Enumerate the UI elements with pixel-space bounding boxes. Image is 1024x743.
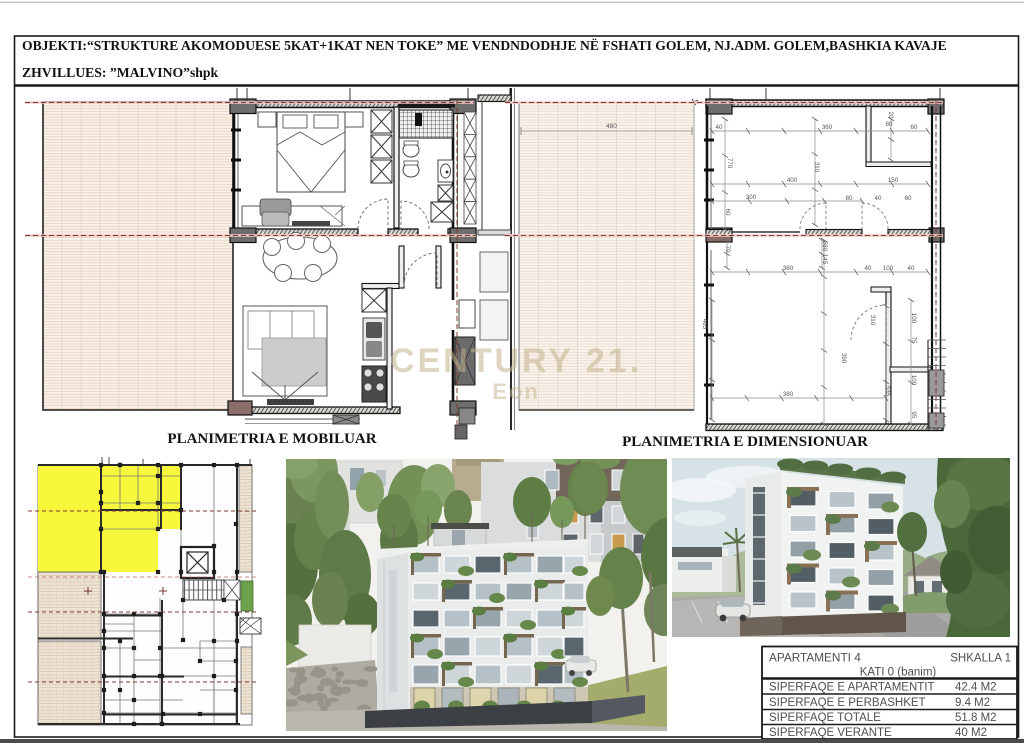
svg-text:APARTAMENTI 4: APARTAMENTI 4 xyxy=(769,651,861,665)
svg-text:40: 40 xyxy=(908,265,915,272)
svg-text:75: 75 xyxy=(910,337,917,344)
svg-text:380: 380 xyxy=(783,265,794,272)
svg-text:PLANIMETRIA E MOBILUAR: PLANIMETRIA E MOBILUAR xyxy=(167,431,376,447)
svg-text:60: 60 xyxy=(724,209,731,216)
svg-text:100: 100 xyxy=(883,265,894,272)
svg-text:51.8 M2: 51.8 M2 xyxy=(955,712,997,724)
svg-text:310: 310 xyxy=(813,162,820,173)
svg-text:SIPERFAQE E PERBASHKET: SIPERFAQE E PERBASHKET xyxy=(769,697,926,709)
svg-text:40: 40 xyxy=(716,124,723,131)
svg-text:PLANIMETRIA E DIMENSIONUAR: PLANIMETRIA E DIMENSIONUAR xyxy=(622,434,868,450)
svg-text:20: 20 xyxy=(887,112,894,119)
svg-text:9.4 M2: 9.4 M2 xyxy=(955,697,990,709)
svg-text:SIPERFAQE E APARTAMENTIT: SIPERFAQE E APARTAMENTIT xyxy=(769,682,935,694)
svg-text:Eon: Eon xyxy=(492,379,540,404)
svg-text:SHKALLA 1: SHKALLA 1 xyxy=(950,653,1011,665)
svg-text:80: 80 xyxy=(846,195,853,202)
svg-text:100: 100 xyxy=(910,375,917,386)
svg-text:40: 40 xyxy=(875,195,882,202)
svg-text:480: 480 xyxy=(606,123,617,130)
svg-text:145: 145 xyxy=(821,254,828,265)
svg-text:70: 70 xyxy=(724,246,731,253)
svg-text:390: 390 xyxy=(840,353,847,364)
svg-text:535: 535 xyxy=(884,386,891,397)
svg-text:380: 380 xyxy=(783,391,794,398)
svg-text:CENTURY 21.: CENTURY 21. xyxy=(390,342,642,380)
svg-text:OBJEKTI:“STRUKTURE AKOMODUESE: OBJEKTI:“STRUKTURE AKOMODUESE 5KAT+1KAT … xyxy=(22,38,947,53)
svg-text:310: 310 xyxy=(869,315,876,326)
svg-text:300: 300 xyxy=(746,194,757,201)
svg-text:42.4 M2: 42.4 M2 xyxy=(955,682,997,694)
svg-text:80: 80 xyxy=(886,121,893,128)
svg-text:SIPERFAQE TOTALE: SIPERFAQE TOTALE xyxy=(769,712,881,724)
svg-text:SIPERFAQE VERANTE: SIPERFAQE VERANTE xyxy=(769,727,892,739)
svg-text:95: 95 xyxy=(910,412,917,419)
svg-text:40: 40 xyxy=(865,265,872,272)
svg-text:360: 360 xyxy=(822,124,833,131)
svg-text:770: 770 xyxy=(726,158,733,169)
svg-text:60: 60 xyxy=(905,195,912,202)
svg-text:580: 580 xyxy=(821,241,828,252)
svg-text:400: 400 xyxy=(787,177,798,184)
svg-text:ZHVILLUES: ”MALVINO”shpk: ZHVILLUES: ”MALVINO”shpk xyxy=(22,65,219,80)
svg-text:KATI 0 (banim): KATI 0 (banim) xyxy=(860,667,937,679)
svg-text:60: 60 xyxy=(911,124,918,131)
svg-text:40 M2: 40 M2 xyxy=(955,727,987,739)
svg-text:100: 100 xyxy=(910,313,917,324)
svg-text:465: 465 xyxy=(701,319,708,330)
svg-text:150: 150 xyxy=(888,177,899,184)
